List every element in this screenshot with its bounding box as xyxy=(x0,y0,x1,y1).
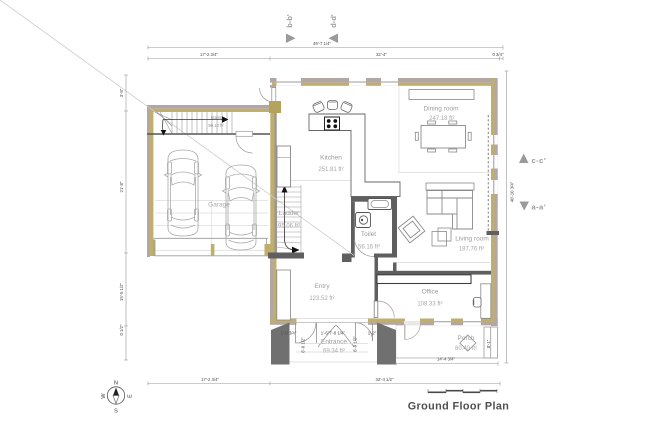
svg-text:99.13 ft²: 99.13 ft² xyxy=(208,123,224,128)
svg-text:6'-8 1/2": 6'-8 1/2" xyxy=(301,337,306,353)
svg-text:251.81 ft²: 251.81 ft² xyxy=(318,167,343,173)
svg-text:15'-5 1/2": 15'-5 1/2" xyxy=(119,282,124,301)
svg-text:69.34 ft²: 69.34 ft² xyxy=(323,349,345,355)
svg-text:N: N xyxy=(114,381,118,387)
svg-text:56.16 ft²: 56.16 ft² xyxy=(358,245,380,251)
svg-text:0 1/2": 0 1/2" xyxy=(119,324,124,336)
svg-text:Ground Floor Plan: Ground Floor Plan xyxy=(408,401,510,413)
svg-text:Entrance: Entrance xyxy=(321,339,347,346)
svg-text:17'-2 3/4": 17'-2 3/4" xyxy=(200,52,219,57)
svg-text:Stairs: Stairs xyxy=(211,115,222,120)
svg-text:Living room: Living room xyxy=(455,236,489,243)
svg-text:6'-8 1/2": 6'-8 1/2" xyxy=(353,336,358,352)
svg-text:187.76 ft²: 187.76 ft² xyxy=(459,247,484,253)
svg-text:W: W xyxy=(101,393,107,399)
svg-text:32'-4": 32'-4" xyxy=(376,52,387,57)
svg-text:1'-2": 1'-2" xyxy=(368,331,377,336)
svg-text:7'-8 1/4": 7'-8 1/4" xyxy=(329,331,345,336)
svg-text:95.06 ft²: 95.06 ft² xyxy=(278,224,300,230)
svg-text:8'-1": 8'-1" xyxy=(486,339,491,348)
svg-text:40'-10 3/4": 40'-10 3/4" xyxy=(510,181,515,202)
svg-text:0 3/4": 0 3/4" xyxy=(492,52,504,57)
svg-text:Kitchen: Kitchen xyxy=(320,155,342,162)
svg-text:d-d': d-d' xyxy=(329,14,338,28)
svg-text:80.40 ft²: 80.40 ft² xyxy=(455,346,477,352)
svg-text:Entry: Entry xyxy=(314,283,330,290)
svg-text:a-a': a-a' xyxy=(532,203,547,212)
svg-text:b-b': b-b' xyxy=(285,14,294,28)
svg-text:E: E xyxy=(128,394,134,398)
svg-text:14'-4 3/4": 14'-4 3/4" xyxy=(437,357,456,362)
svg-text:247.18 ft²: 247.18 ft² xyxy=(429,116,454,122)
svg-text:32'-4 1/2": 32'-4 1/2" xyxy=(375,377,394,382)
svg-text:17'-2 3/4": 17'-2 3/4" xyxy=(201,377,220,382)
svg-text:Ladder: Ladder xyxy=(279,210,300,217)
svg-text:Toilet: Toilet xyxy=(361,231,376,238)
svg-text:c-c': c-c' xyxy=(532,156,547,165)
svg-text:Dining room: Dining room xyxy=(423,106,458,113)
svg-text:Garage: Garage xyxy=(208,202,230,209)
svg-text:108.33 ft²: 108.33 ft² xyxy=(417,302,442,308)
svg-text:S: S xyxy=(114,409,118,415)
svg-text:21'-8": 21'-8" xyxy=(119,181,124,192)
svg-text:1'-0 3/4": 1'-0 3/4" xyxy=(281,331,297,336)
svg-text:123.52 ft²: 123.52 ft² xyxy=(309,296,334,302)
svg-text:3'-8": 3'-8" xyxy=(119,88,124,97)
svg-text:Office: Office xyxy=(422,289,439,296)
svg-text:Porch: Porch xyxy=(458,335,475,342)
svg-text:49'-7 1/4": 49'-7 1/4" xyxy=(313,41,332,46)
